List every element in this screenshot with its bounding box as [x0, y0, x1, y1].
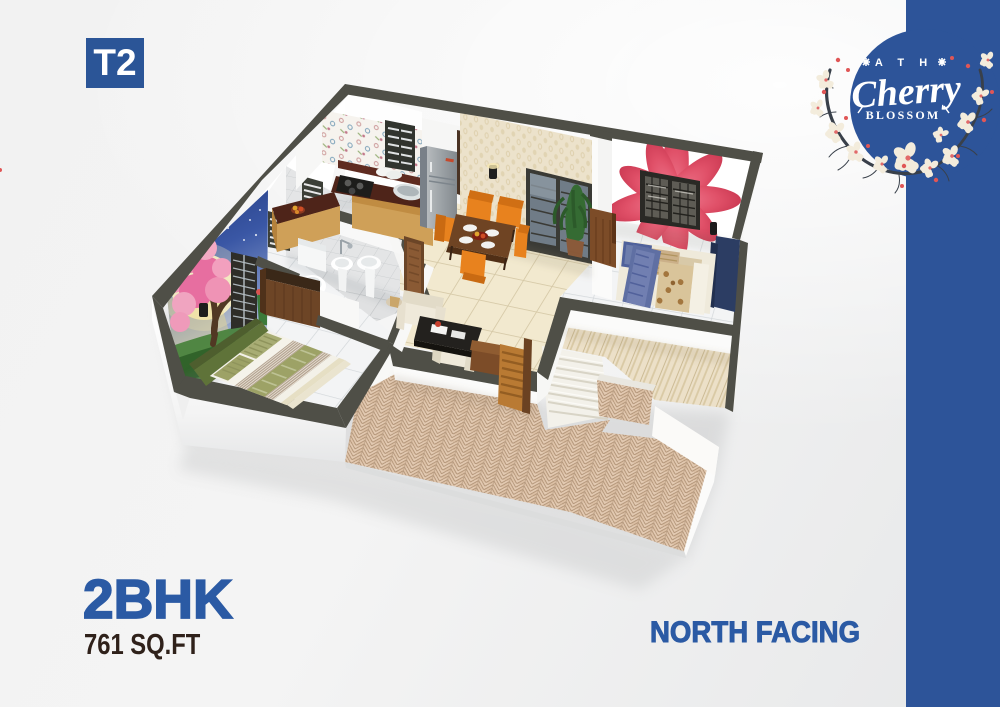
svg-text:BLOSSOM: BLOSSOM — [866, 108, 941, 122]
svg-text:A T H: A T H — [875, 57, 933, 69]
